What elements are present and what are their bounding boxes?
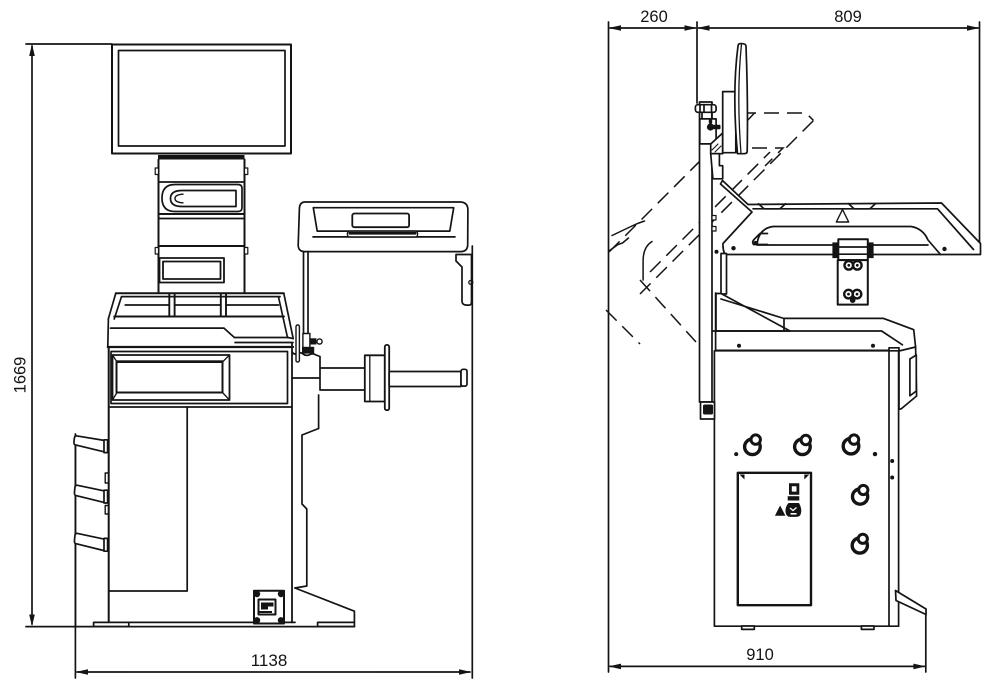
svg-text:1669: 1669 [12, 357, 30, 394]
svg-text:260: 260 [640, 8, 668, 26]
svg-text:1138: 1138 [251, 651, 288, 670]
svg-text:809: 809 [834, 8, 862, 26]
svg-text:910: 910 [746, 646, 774, 664]
